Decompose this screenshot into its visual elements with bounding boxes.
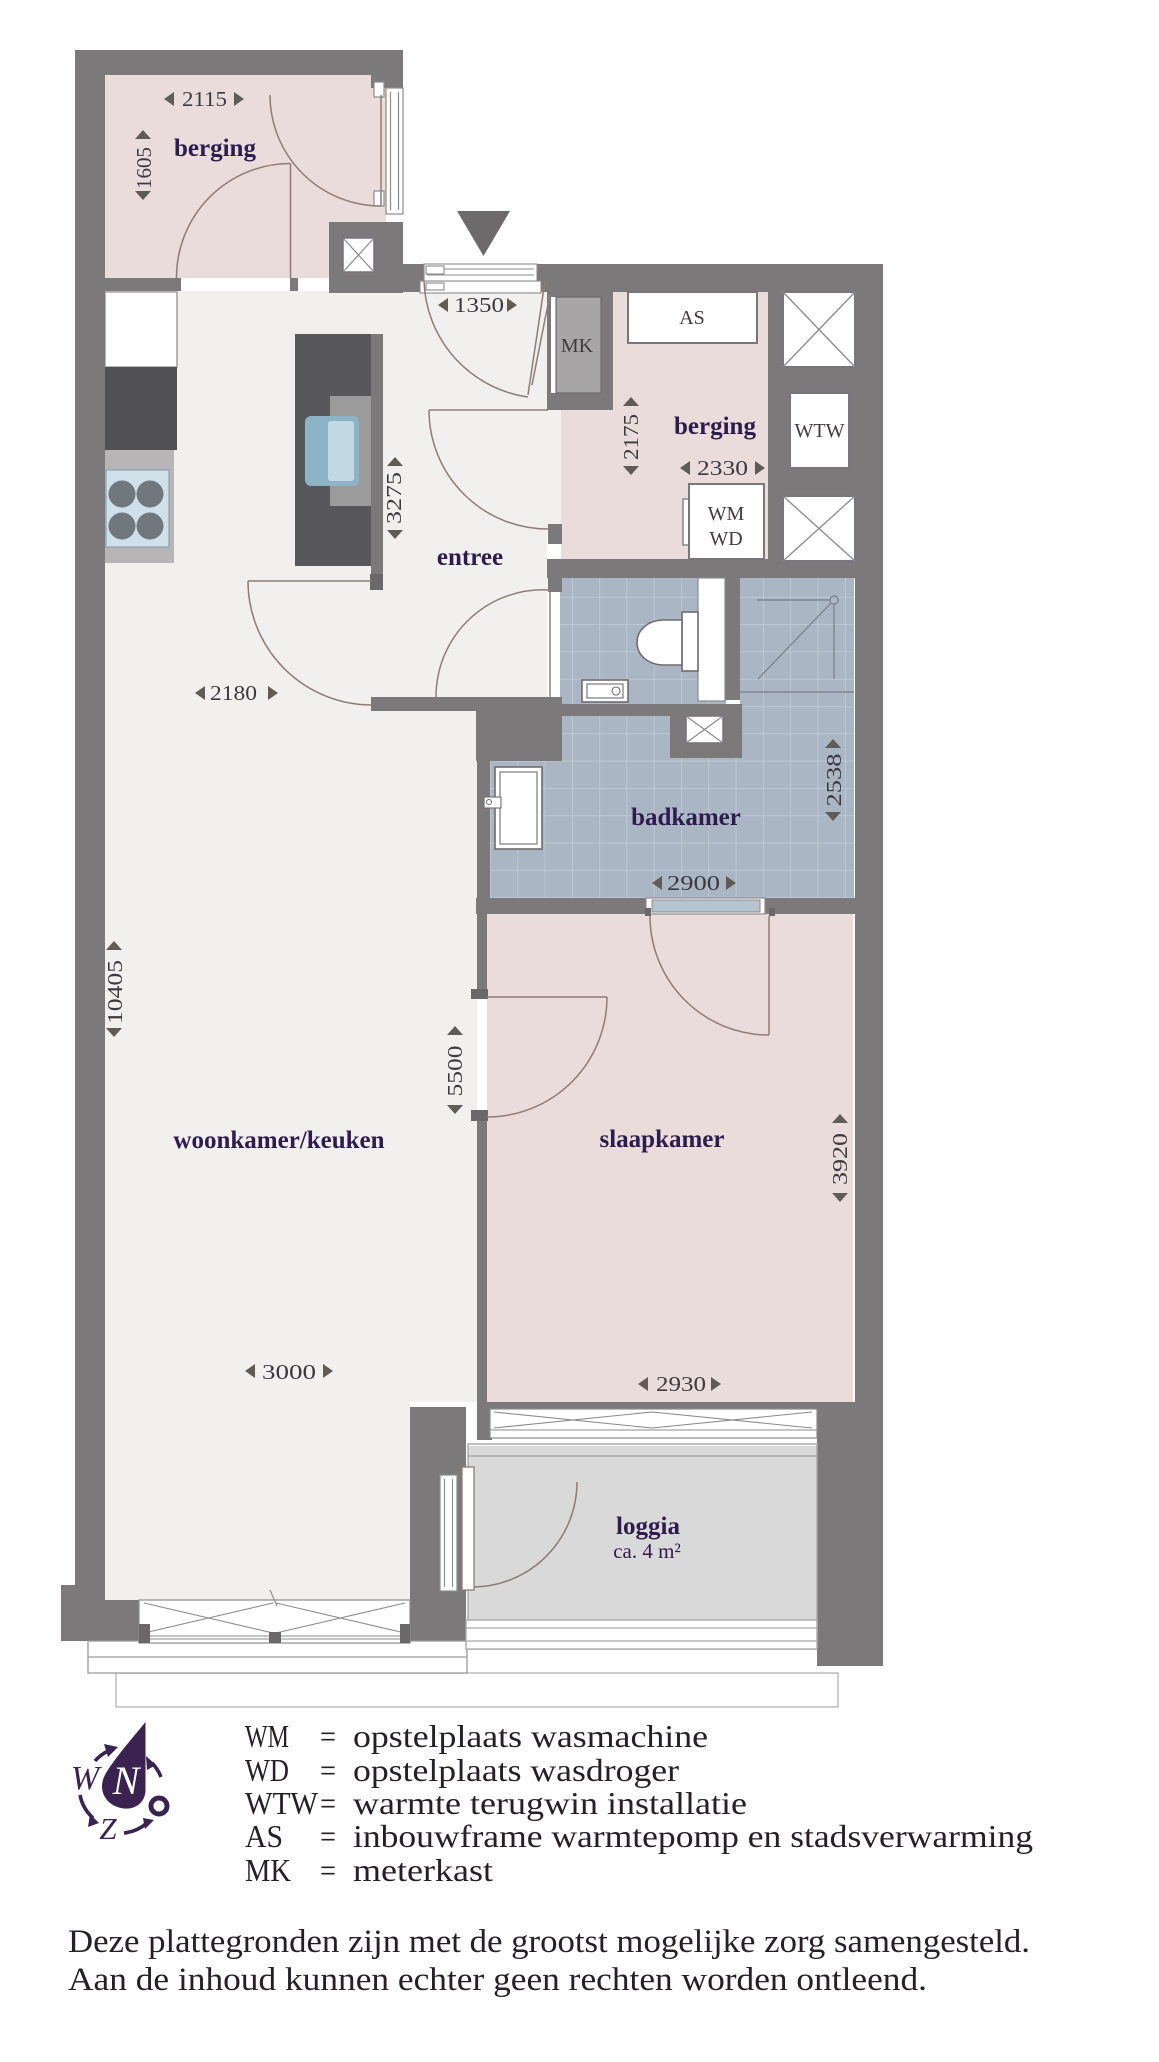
svg-text:badkamer: badkamer bbox=[631, 804, 741, 831]
svg-text:berging: berging bbox=[674, 413, 756, 440]
svg-text:Deze plattegronden zijn met de: Deze plattegronden zijn met de grootst m… bbox=[68, 1924, 1030, 1960]
svg-text:N: N bbox=[112, 1758, 142, 1803]
svg-text:2115: 2115 bbox=[182, 87, 227, 111]
svg-text:2175: 2175 bbox=[619, 414, 643, 460]
svg-text:2330: 2330 bbox=[697, 456, 748, 480]
svg-text:slaapkamer: slaapkamer bbox=[600, 1126, 725, 1153]
svg-text:AS: AS bbox=[679, 307, 705, 329]
svg-text:=: = bbox=[320, 1718, 336, 1754]
svg-text:2930: 2930 bbox=[656, 1372, 706, 1396]
svg-text:2900: 2900 bbox=[667, 871, 720, 895]
svg-text:opstelplaats wasdroger: opstelplaats wasdroger bbox=[353, 1752, 679, 1788]
svg-text:AS: AS bbox=[245, 1818, 283, 1854]
svg-text:berging: berging bbox=[174, 135, 256, 162]
svg-text:Aan de inhoud kunnen echter ge: Aan de inhoud kunnen echter geen rechten… bbox=[68, 1962, 927, 1998]
svg-text:WTW: WTW bbox=[245, 1785, 319, 1821]
svg-text:2538: 2538 bbox=[822, 754, 846, 807]
svg-text:inbouwframe warmtepomp en stad: inbouwframe warmtepomp en stadsverwarmin… bbox=[353, 1818, 1033, 1854]
svg-text:3920: 3920 bbox=[828, 1133, 852, 1185]
svg-text:ca. 4 m²: ca. 4 m² bbox=[613, 1539, 681, 1563]
svg-text:=: = bbox=[320, 1785, 336, 1821]
svg-text:meterkast: meterkast bbox=[353, 1852, 493, 1888]
svg-text:W: W bbox=[71, 1760, 102, 1797]
svg-text:WM: WM bbox=[245, 1718, 289, 1754]
svg-text:1605: 1605 bbox=[132, 147, 156, 189]
svg-text:=: = bbox=[320, 1752, 336, 1788]
svg-text:WD: WD bbox=[709, 528, 742, 550]
svg-text:MK: MK bbox=[245, 1852, 291, 1888]
svg-text:loggia: loggia bbox=[616, 1513, 680, 1540]
svg-text:WM: WM bbox=[708, 503, 745, 525]
svg-text:MK: MK bbox=[561, 335, 594, 357]
svg-text:2180: 2180 bbox=[210, 681, 257, 705]
svg-text:WD: WD bbox=[245, 1752, 289, 1788]
svg-text:10405: 10405 bbox=[103, 960, 127, 1024]
svg-text:opstelplaats wasmachine: opstelplaats wasmachine bbox=[353, 1718, 708, 1754]
svg-text:entree: entree bbox=[437, 544, 503, 571]
svg-text:warmte terugwin installatie: warmte terugwin installatie bbox=[353, 1785, 747, 1821]
svg-text:woonkamer/keuken: woonkamer/keuken bbox=[173, 1127, 384, 1154]
svg-text:3000: 3000 bbox=[262, 1360, 316, 1384]
svg-text:=: = bbox=[320, 1852, 336, 1888]
svg-text:3275: 3275 bbox=[382, 472, 406, 524]
svg-text:=: = bbox=[320, 1818, 336, 1854]
svg-text:5500: 5500 bbox=[443, 1046, 467, 1097]
svg-text:Z: Z bbox=[99, 1811, 117, 1846]
svg-text:1350: 1350 bbox=[454, 293, 504, 317]
svg-text:WTW: WTW bbox=[795, 420, 845, 442]
